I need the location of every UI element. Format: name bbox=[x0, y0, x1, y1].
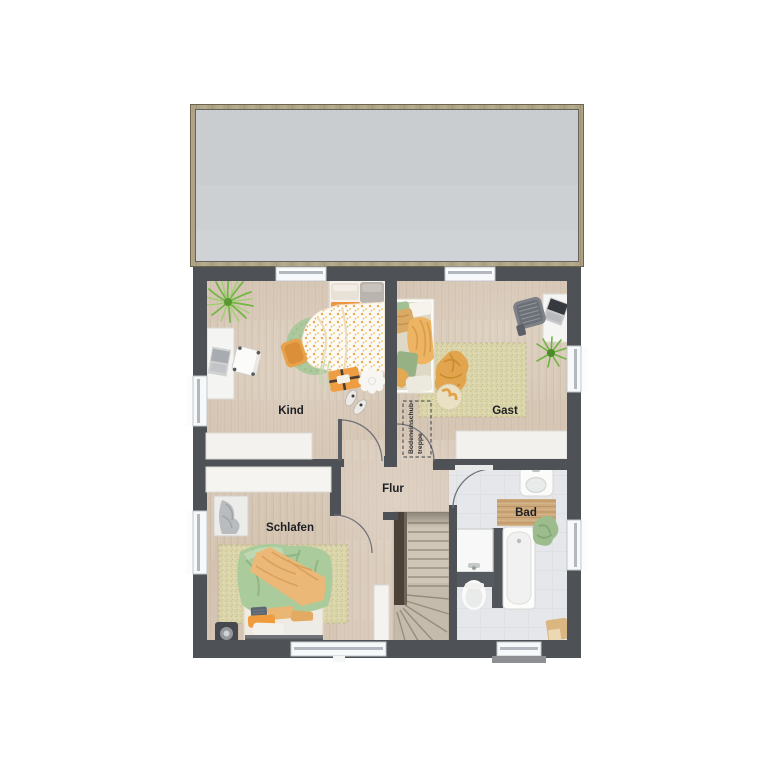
svg-text:Bodeneinschub-: Bodeneinschub- bbox=[408, 401, 415, 454]
svg-text:treppe: treppe bbox=[417, 433, 424, 454]
svg-text:Schlafen: Schlafen bbox=[266, 522, 314, 534]
svg-text:Flur: Flur bbox=[382, 483, 404, 495]
svg-text:Gast: Gast bbox=[492, 405, 518, 417]
svg-text:Bad: Bad bbox=[515, 507, 537, 519]
svg-text:Kind: Kind bbox=[278, 405, 304, 417]
